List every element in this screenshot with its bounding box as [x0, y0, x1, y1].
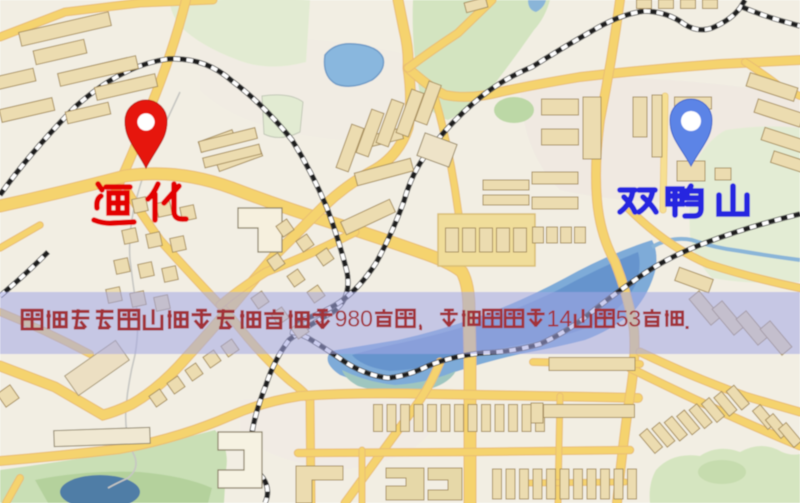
svg-text:980: 980 [335, 306, 373, 332]
svg-text:14: 14 [547, 306, 573, 332]
svg-text:53: 53 [616, 306, 642, 332]
